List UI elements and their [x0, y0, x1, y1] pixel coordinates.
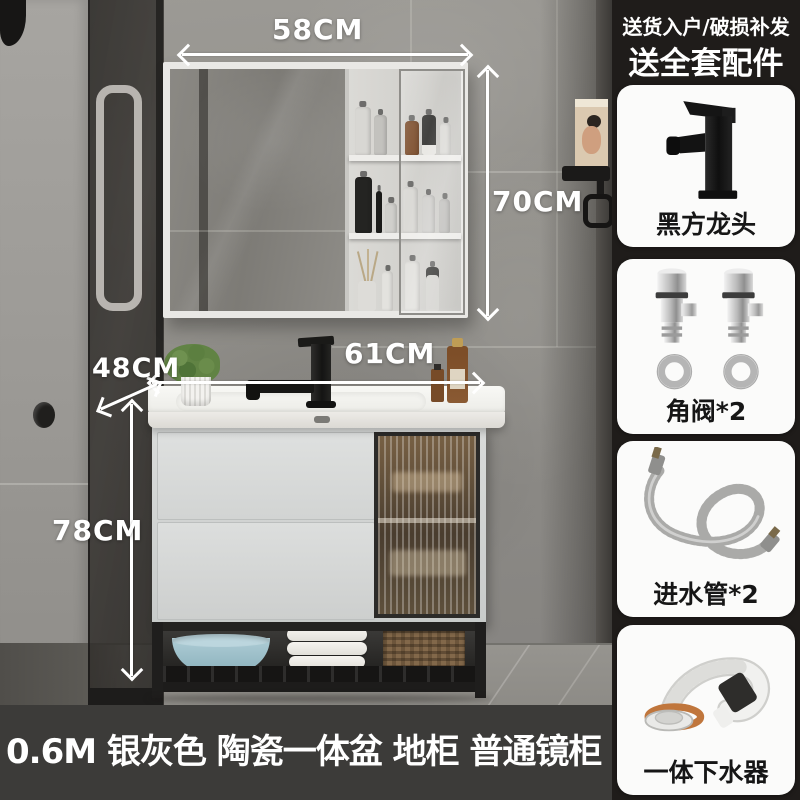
promo-line-2: 送全套配件: [612, 38, 800, 83]
cabinet-glass-door: [399, 69, 465, 315]
mirror-cabinet: [163, 62, 468, 318]
accessory-card-faucet: 黑方龙头: [617, 85, 795, 247]
left-wall: [0, 0, 90, 705]
accessories-sidebar: 送货入户/破损补发 送全套配件 黑方龙头: [612, 0, 800, 800]
door-inner-towels: [392, 472, 462, 492]
amber-bottle: [431, 369, 444, 402]
towel-ring: [583, 194, 612, 228]
bottle-label: [450, 369, 465, 389]
accessory-card-valves: 角阀*2: [617, 259, 795, 434]
diffuser-stick: [369, 251, 378, 285]
dim-arrow-mirror-height: [486, 70, 489, 316]
toiletry-bottle: [385, 203, 397, 233]
dim-counter-depth: 48CM: [92, 355, 180, 382]
caption-text: 0.6M 银灰色 陶瓷一体盆 地柜 普通镜柜: [6, 705, 610, 800]
drawer-top: [157, 432, 375, 520]
cabinet-leg: [475, 622, 486, 698]
caption-bar: 0.6M 银灰色 陶瓷一体盆 地柜 普通镜柜: [0, 705, 612, 800]
grout-line: [0, 483, 90, 485]
sink-overflow: [314, 416, 330, 423]
inlet-hose-icon: [627, 447, 785, 575]
base-rail-bottom: [152, 682, 486, 692]
floor-shadow: [147, 695, 493, 702]
door-inner-shelf: [378, 518, 476, 523]
base-shelf-slats: [163, 666, 475, 682]
accessory-card-drain: 一体下水器: [617, 625, 795, 795]
product-listing-image: 58CM 70CM 61CM 48CM 78CM 0.6M 银灰色 陶瓷一体盆 …: [0, 0, 800, 800]
accessory-label: 一体下水器: [643, 759, 768, 787]
base-rail-top: [152, 622, 486, 631]
accessory-label: 角阀*2: [666, 398, 746, 426]
toiletry-bottle: [374, 115, 387, 155]
product-photo: 58CM 70CM 61CM 48CM 78CM: [0, 0, 612, 705]
storage-basket: [383, 628, 465, 668]
folded-towel: [287, 642, 367, 655]
fluted-glass-door: [374, 432, 480, 618]
amber-bottle: [447, 346, 468, 403]
toiletry-bottle: [376, 191, 382, 233]
dim-arrow-counter-width: [152, 381, 480, 384]
wall-art: [575, 99, 608, 167]
toiletry-bottle: [355, 107, 371, 155]
accessory-label: 进水管*2: [653, 581, 758, 609]
black-faucet-icon: [651, 91, 761, 209]
vanity-cabinet: [152, 426, 486, 624]
mirror-reflection-grout: [170, 230, 345, 232]
angle-valve-icon: [631, 265, 781, 393]
door-inner-towels: [390, 550, 466, 576]
art-figure: [582, 126, 601, 154]
towel-stack: [287, 628, 367, 670]
faucet-body: [311, 344, 331, 404]
dim-counter-width: 61CM: [344, 340, 435, 368]
diffuser-stick: [357, 251, 367, 284]
toiletry-bottle: [382, 271, 393, 311]
dim-arrow-mirror-width: [182, 53, 468, 56]
diffuser-vase: [358, 281, 376, 311]
cabinet-leg: [152, 622, 163, 698]
dim-cabinet-height: 78CM: [52, 517, 143, 545]
shower-knob: [33, 402, 55, 428]
mirror-glass: [170, 69, 345, 311]
drawer-bottom: [157, 522, 375, 620]
promo-line-1: 送货入户/破损补发: [612, 11, 800, 40]
drain-pipe-icon: [627, 631, 785, 753]
bottle-cap: [452, 338, 463, 347]
accessory-card-hoses: 进水管*2: [617, 441, 795, 617]
faucet-base: [306, 401, 336, 408]
toiletry-bottle: [355, 177, 372, 233]
accessory-label: 黑方龙头: [656, 211, 756, 239]
mirror-reflection-stripe: [199, 69, 208, 311]
fluted-glass: [378, 436, 476, 614]
dim-mirror-width: 58CM: [272, 16, 358, 44]
sink-basin-hint: [176, 392, 426, 411]
shower-door-handle: [96, 85, 142, 311]
diffuser-stick: [367, 249, 369, 285]
dim-mirror-height: 70CM: [492, 188, 583, 216]
wash-basin-rim: [172, 634, 270, 647]
